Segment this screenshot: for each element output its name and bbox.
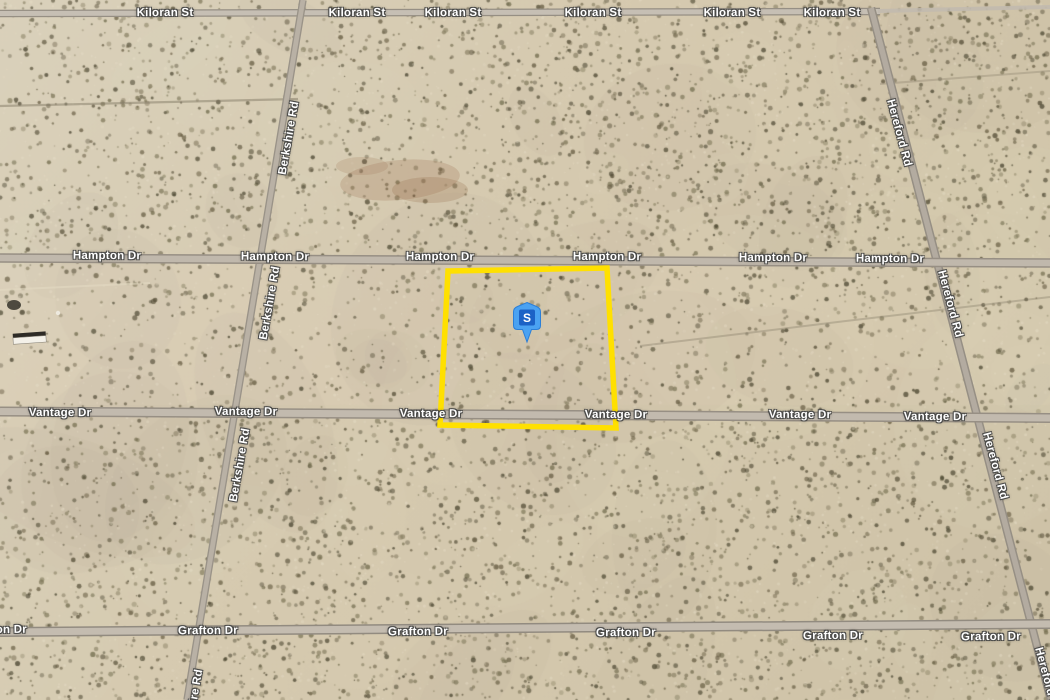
terrain-patch <box>336 155 468 205</box>
road-vantage-dr <box>0 412 1050 419</box>
roads <box>0 0 1050 700</box>
location-marker[interactable]: S <box>514 303 541 343</box>
road-berkshire-rd <box>187 0 303 700</box>
road-hereford-rd <box>871 8 1050 700</box>
map-overlay: S <box>0 0 1050 700</box>
satellite-map[interactable]: S Kiloran StKiloran StKiloran StKiloran … <box>0 0 1050 700</box>
road-hampton-dr <box>0 258 1050 263</box>
marker-label: S <box>523 311 531 325</box>
building <box>7 300 60 344</box>
road-kiloran-st <box>0 7 1050 14</box>
parcel-boundary[interactable] <box>440 268 616 428</box>
road-grafton-dr <box>0 624 1050 632</box>
